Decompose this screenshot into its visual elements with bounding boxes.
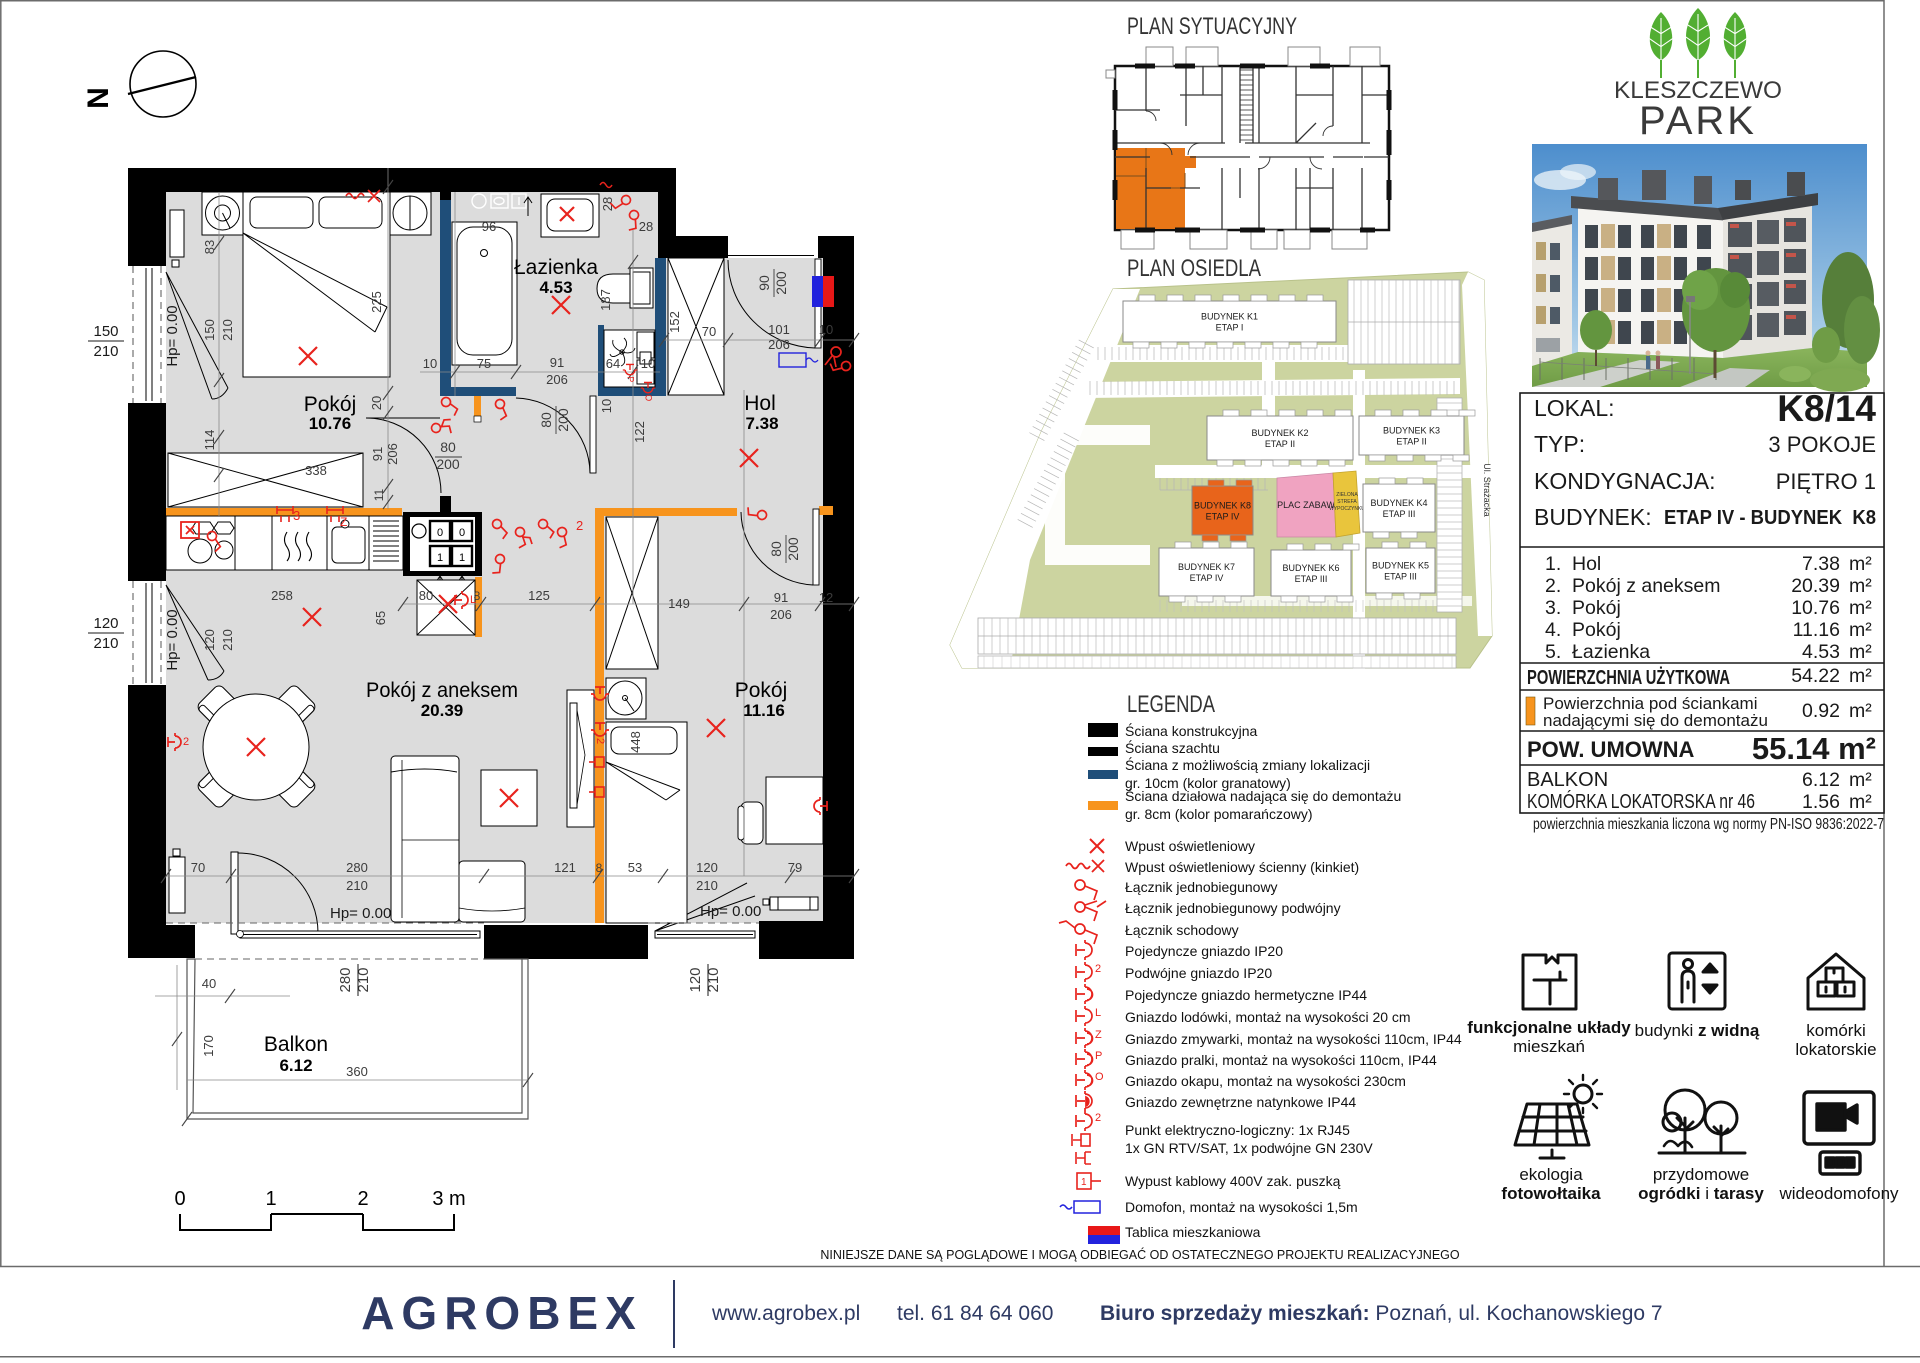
svg-text:64: 64	[606, 356, 620, 371]
svg-text:Hol: Hol	[1572, 553, 1601, 575]
svg-text:przydomowe: przydomowe	[1653, 1165, 1749, 1184]
svg-text:210: 210	[93, 635, 118, 652]
svg-text:210: 210	[346, 878, 368, 893]
svg-text:1x GN RTV/SAT, 1x podwójne GN: 1x GN RTV/SAT, 1x podwójne GN 230V	[1125, 1140, 1373, 1156]
svg-text:Hp= 0.00: Hp= 0.00	[700, 903, 761, 920]
svg-text:4.53: 4.53	[539, 278, 572, 297]
svg-text:AGROBEX: AGROBEX	[361, 1287, 643, 1339]
svg-text:lokatorskie: lokatorskie	[1795, 1040, 1876, 1059]
svg-text:1: 1	[437, 552, 443, 564]
svg-text:Gniazdo pralki, montaż na wyso: Gniazdo pralki, montaż na wysokości 110c…	[1125, 1052, 1437, 1068]
svg-text:BUDYNEK K5: BUDYNEK K5	[1372, 561, 1429, 571]
svg-text:WYPOCZYNKU: WYPOCZYNKU	[1329, 506, 1365, 512]
svg-text:11.16: 11.16	[743, 701, 785, 720]
svg-text:Wpust oświetleniowy ścienny (k: Wpust oświetleniowy ścienny (kinkiet)	[1125, 859, 1359, 875]
svg-text:Gniazdo okapu, montaż na wysok: Gniazdo okapu, montaż na wysokości 230cm	[1125, 1073, 1406, 1089]
svg-text:83: 83	[202, 240, 217, 254]
svg-text:ETAP III: ETAP III	[1295, 574, 1328, 584]
svg-text:L: L	[470, 594, 476, 606]
svg-text:Hp= 0.00: Hp= 0.00	[164, 305, 181, 366]
svg-text:ETAP II: ETAP II	[1396, 437, 1426, 447]
svg-text:ETAP IV: ETAP IV	[1206, 512, 1240, 522]
svg-text:BUDYNEK K7: BUDYNEK K7	[1178, 562, 1235, 572]
svg-text:Pojedyncze gniazdo hermetyczne: Pojedyncze gniazdo hermetyczne IP44	[1125, 987, 1367, 1003]
svg-text:m²: m²	[1849, 597, 1872, 619]
svg-text:m²: m²	[1849, 553, 1872, 575]
svg-text:PLAN SYTUACYJNY: PLAN SYTUACYJNY	[1127, 13, 1297, 40]
svg-text:338: 338	[305, 463, 327, 478]
svg-text:Z: Z	[340, 515, 347, 529]
svg-text:96: 96	[482, 219, 496, 234]
svg-text:280: 280	[337, 967, 354, 992]
svg-text:BUDYNEK K1: BUDYNEK K1	[1201, 312, 1258, 322]
svg-text:0: 0	[437, 527, 443, 539]
svg-text:Łazienka: Łazienka	[514, 256, 598, 279]
svg-text:gr. 8cm (kolor pomarańczowy): gr. 8cm (kolor pomarańczowy)	[1125, 806, 1313, 822]
svg-text:m²: m²	[1849, 769, 1872, 791]
svg-text:ETAP I: ETAP I	[1216, 323, 1244, 333]
svg-text:BUDYNEK K4: BUDYNEK K4	[1370, 498, 1427, 508]
svg-text:Hol: Hol	[744, 392, 776, 415]
svg-text:75: 75	[477, 356, 491, 371]
svg-text:1: 1	[459, 552, 465, 564]
svg-text:2: 2	[576, 518, 583, 533]
svg-text:120: 120	[696, 860, 718, 875]
svg-text:11.16: 11.16	[1793, 619, 1840, 641]
svg-text:powierzchnia mieszkania liczon: powierzchnia mieszkania liczona wg normy…	[1533, 816, 1884, 833]
svg-text:40: 40	[202, 976, 216, 991]
svg-text:BUDYNEK:: BUDYNEK:	[1534, 504, 1652, 530]
svg-text:ETAP II: ETAP II	[1265, 439, 1295, 449]
svg-text:nadającymi się do demontażu: nadającymi się do demontażu	[1543, 711, 1768, 730]
svg-text:2: 2	[594, 738, 606, 744]
svg-text:POW. UMOWNA: POW. UMOWNA	[1527, 737, 1695, 762]
svg-text:tel. 61 84 64 060: tel. 61 84 64 060	[897, 1302, 1053, 1325]
svg-text:65: 65	[373, 611, 388, 625]
svg-text:Łazienka: Łazienka	[1572, 641, 1650, 663]
svg-text:Łącznik schodowy: Łącznik schodowy	[1125, 922, 1239, 938]
svg-text:BALKON: BALKON	[1527, 769, 1608, 791]
svg-text:2: 2	[183, 736, 189, 748]
svg-text:POWIERZCHNIA UŻYTKOWA: POWIERZCHNIA UŻYTKOWA	[1527, 666, 1730, 689]
svg-text:O: O	[644, 394, 654, 401]
svg-text:Podwójne gniazdo IP20: Podwójne gniazdo IP20	[1125, 965, 1272, 981]
svg-text:114: 114	[202, 430, 217, 451]
svg-text:ETAP III: ETAP III	[1384, 572, 1417, 582]
svg-text:5.: 5.	[1545, 641, 1561, 663]
svg-text:Biuro sprzedaży mieszkań: Pozn: Biuro sprzedaży mieszkań: Poznań, ul. Ko…	[1100, 1302, 1663, 1325]
svg-text:206: 206	[546, 372, 568, 387]
svg-text:2: 2	[1095, 1112, 1101, 1124]
svg-text:10: 10	[599, 399, 614, 413]
svg-text:10: 10	[819, 322, 833, 337]
svg-text:m²: m²	[1849, 665, 1872, 687]
svg-text:448: 448	[628, 731, 643, 753]
svg-text:80: 80	[419, 588, 433, 603]
svg-text:ETAP IV - BUDYNEK K8: ETAP IV - BUDYNEK K8	[1664, 506, 1876, 529]
svg-text:Gniazdo lodówki, montaż na wys: Gniazdo lodówki, montaż na wysokości 20 …	[1125, 1009, 1411, 1025]
svg-text:20.39: 20.39	[1791, 575, 1840, 597]
svg-text:53: 53	[628, 860, 642, 875]
svg-text:ETAP IV: ETAP IV	[1190, 573, 1224, 583]
svg-text:0: 0	[174, 1188, 185, 1210]
svg-text:0: 0	[459, 527, 465, 539]
svg-text:280: 280	[346, 860, 368, 875]
svg-text:Pokój: Pokój	[735, 679, 788, 702]
svg-text:54.22: 54.22	[1791, 665, 1840, 687]
svg-text:8: 8	[596, 861, 603, 875]
svg-text:komórki: komórki	[1806, 1021, 1866, 1040]
svg-text:NINIEJSZE DANE SĄ POGLĄDOWE I: NINIEJSZE DANE SĄ POGLĄDOWE I MOGĄ ODBIE…	[820, 1247, 1459, 1262]
svg-text:BUDYNEK K8: BUDYNEK K8	[1194, 501, 1251, 511]
svg-text:121: 121	[554, 860, 576, 875]
svg-text:80: 80	[538, 412, 554, 428]
svg-text:funkcjonalne układy: funkcjonalne układy	[1467, 1018, 1631, 1037]
svg-text:O: O	[1095, 1071, 1104, 1083]
svg-text:360: 360	[346, 1064, 368, 1079]
svg-text:fotowołtaika: fotowołtaika	[1501, 1184, 1601, 1203]
svg-text:TYP:: TYP:	[1534, 431, 1585, 457]
svg-text:P: P	[1095, 1050, 1102, 1062]
svg-text:Ściana konstrukcyjna: Ściana konstrukcyjna	[1125, 722, 1258, 739]
svg-text:Gniazdo zewnętrzne natynkowe I: Gniazdo zewnętrzne natynkowe IP44	[1125, 1094, 1356, 1110]
svg-text:Pokój: Pokój	[1572, 619, 1621, 641]
svg-text:10.76: 10.76	[1791, 597, 1840, 619]
svg-text:150: 150	[202, 319, 217, 341]
svg-text:Pojedyncze gniazdo IP20: Pojedyncze gniazdo IP20	[1125, 943, 1283, 959]
svg-text:80: 80	[440, 439, 456, 455]
svg-text:120: 120	[202, 629, 217, 651]
svg-text:200: 200	[555, 408, 571, 432]
svg-text:1.56: 1.56	[1802, 791, 1840, 813]
svg-text:210: 210	[696, 878, 718, 893]
svg-text:200: 200	[436, 456, 460, 472]
svg-text:Wypust kablowy 400V zak. puszk: Wypust kablowy 400V zak. puszką	[1125, 1173, 1341, 1189]
svg-text:Łącznik jednobiegunowy: Łącznik jednobiegunowy	[1125, 879, 1278, 895]
svg-text:Balkon: Balkon	[264, 1033, 328, 1056]
svg-text:L: L	[1095, 1007, 1101, 1019]
svg-text:10: 10	[423, 356, 437, 371]
svg-text:0.92: 0.92	[1802, 700, 1840, 722]
svg-text:Ściana szachtu: Ściana szachtu	[1125, 739, 1220, 756]
svg-text:Gniazdo zmywarki, montaż na wy: Gniazdo zmywarki, montaż na wysokości 11…	[1125, 1031, 1462, 1047]
svg-text:206: 206	[768, 337, 790, 352]
svg-text:206: 206	[385, 443, 400, 465]
svg-text:210: 210	[220, 629, 235, 651]
svg-text:120: 120	[93, 615, 118, 632]
svg-text:125: 125	[528, 588, 550, 603]
svg-text:LEGENDA: LEGENDA	[1127, 691, 1215, 718]
svg-text:Pokój z aneksem: Pokój z aneksem	[366, 679, 518, 702]
svg-text:3: 3	[293, 508, 300, 523]
svg-text:m²: m²	[1849, 700, 1872, 722]
svg-text:PIĘTRO 1: PIĘTRO 1	[1776, 469, 1876, 494]
svg-text:KOMÓRKA LOKATORSKA nr 46: KOMÓRKA LOKATORSKA nr 46	[1527, 790, 1755, 813]
svg-text:70: 70	[191, 860, 205, 875]
svg-text:80: 80	[768, 541, 784, 557]
svg-text:BUDYNEK K6: BUDYNEK K6	[1282, 563, 1339, 573]
svg-text:7.38: 7.38	[745, 414, 778, 433]
svg-text:20: 20	[369, 396, 384, 410]
svg-text:Punkt elektryczno-logiczny: 1x: Punkt elektryczno-logiczny: 1x RJ45	[1125, 1122, 1350, 1138]
svg-text:budynki z widną: budynki z widną	[1635, 1021, 1760, 1040]
svg-text:www.agrobex.pl: www.agrobex.pl	[711, 1302, 860, 1325]
svg-text:149: 149	[668, 596, 690, 611]
svg-text:122: 122	[632, 421, 647, 443]
svg-text:28: 28	[639, 219, 653, 234]
svg-text:2: 2	[357, 1188, 368, 1210]
svg-text:m²: m²	[1849, 575, 1872, 597]
svg-text:ekologia: ekologia	[1519, 1165, 1583, 1184]
svg-text:70: 70	[702, 324, 716, 339]
svg-text:Wpust oświetleniowy: Wpust oświetleniowy	[1125, 838, 1255, 854]
svg-text:STREFA: STREFA	[1337, 499, 1357, 505]
svg-text:101: 101	[768, 322, 790, 337]
svg-text:152: 152	[667, 311, 682, 333]
svg-text:10: 10	[641, 356, 655, 371]
svg-text:6.12: 6.12	[1802, 769, 1840, 791]
svg-text:7.38: 7.38	[1802, 553, 1840, 575]
svg-text:Domofon, montaż na wysokości 1: Domofon, montaż na wysokości 1,5m	[1125, 1199, 1358, 1215]
svg-text:P: P	[626, 376, 636, 382]
svg-text:Pokój: Pokój	[1572, 597, 1621, 619]
svg-text:1.: 1.	[1545, 553, 1561, 575]
svg-text:Tablica mieszkaniowa: Tablica mieszkaniowa	[1125, 1224, 1261, 1240]
svg-text:11: 11	[372, 488, 386, 501]
svg-text:187: 187	[598, 289, 613, 311]
svg-text:3 m: 3 m	[432, 1188, 465, 1210]
svg-text:79: 79	[788, 860, 802, 875]
svg-text:120: 120	[687, 967, 704, 992]
svg-text:Łącznik jednobiegunowy podwójn: Łącznik jednobiegunowy podwójny	[1125, 900, 1341, 916]
svg-text:BUDYNEK K2: BUDYNEK K2	[1251, 428, 1308, 438]
svg-text:200: 200	[785, 537, 801, 561]
svg-text:PLAN OSIEDLA: PLAN OSIEDLA	[1127, 255, 1261, 282]
svg-text:150: 150	[93, 323, 118, 340]
svg-text:2: 2	[1095, 963, 1101, 975]
svg-text:Ściana z możliwością zmiany lo: Ściana z możliwością zmiany lokalizacji	[1125, 756, 1370, 773]
svg-text:210: 210	[220, 319, 235, 341]
svg-text:2.: 2.	[1545, 575, 1561, 597]
svg-text:Ściana działowa nadająca się d: Ściana działowa nadająca się do demontaż…	[1125, 787, 1401, 804]
svg-text:m²: m²	[1849, 641, 1872, 663]
svg-text:wideodomofony: wideodomofony	[1778, 1184, 1899, 1203]
svg-text:12: 12	[819, 590, 833, 605]
svg-text:ogródki i tarasy: ogródki i tarasy	[1638, 1184, 1764, 1203]
svg-text:Ul. Strażacka: Ul. Strażacka	[1482, 463, 1492, 517]
svg-text:N: N	[82, 87, 115, 109]
svg-text:PLAC ZABAW: PLAC ZABAW	[1277, 500, 1335, 510]
svg-text:KONDYGNACJA:: KONDYGNACJA:	[1534, 468, 1715, 494]
svg-text:55.14 m²: 55.14 m²	[1752, 731, 1876, 766]
svg-text:91: 91	[550, 355, 564, 370]
svg-text:ETAP III: ETAP III	[1383, 509, 1416, 519]
svg-text:PARK: PARK	[1639, 99, 1757, 143]
svg-text:Z: Z	[1095, 1029, 1102, 1041]
svg-text:Pokój: Pokój	[304, 393, 357, 416]
svg-text:91: 91	[370, 447, 385, 461]
svg-text:6.12: 6.12	[279, 1056, 312, 1075]
svg-text:LOKAL:: LOKAL:	[1534, 395, 1615, 421]
svg-text:3 POKOJE: 3 POKOJE	[1768, 432, 1876, 457]
svg-text:m²: m²	[1849, 619, 1872, 641]
svg-text:20.39: 20.39	[421, 701, 464, 720]
svg-text:ZIELONA: ZIELONA	[1336, 492, 1358, 498]
svg-text:206: 206	[770, 607, 792, 622]
svg-text:200: 200	[773, 271, 789, 295]
svg-text:1: 1	[1081, 1177, 1087, 1188]
svg-text:90: 90	[756, 275, 772, 291]
svg-text:225: 225	[369, 291, 384, 313]
svg-text:10.76: 10.76	[309, 414, 352, 433]
svg-text:1: 1	[265, 1188, 276, 1210]
svg-text:Hp= 0.00: Hp= 0.00	[164, 609, 181, 670]
svg-text:4.53: 4.53	[1802, 641, 1840, 663]
svg-text:91: 91	[774, 590, 788, 605]
svg-text:210: 210	[93, 343, 118, 360]
svg-text:K8/14: K8/14	[1777, 388, 1876, 429]
svg-text:m²: m²	[1849, 791, 1872, 813]
svg-text:4.: 4.	[1545, 619, 1561, 641]
svg-text:Pokój z aneksem: Pokój z aneksem	[1572, 575, 1721, 597]
svg-text:28: 28	[600, 197, 615, 211]
svg-text:BUDYNEK K3: BUDYNEK K3	[1383, 426, 1440, 436]
svg-text:258: 258	[271, 588, 293, 603]
svg-text:mieszkań: mieszkań	[1513, 1037, 1585, 1056]
svg-text:3.: 3.	[1545, 597, 1561, 619]
svg-text:170: 170	[201, 1035, 216, 1057]
svg-text:Hp= 0.00: Hp= 0.00	[330, 905, 391, 922]
